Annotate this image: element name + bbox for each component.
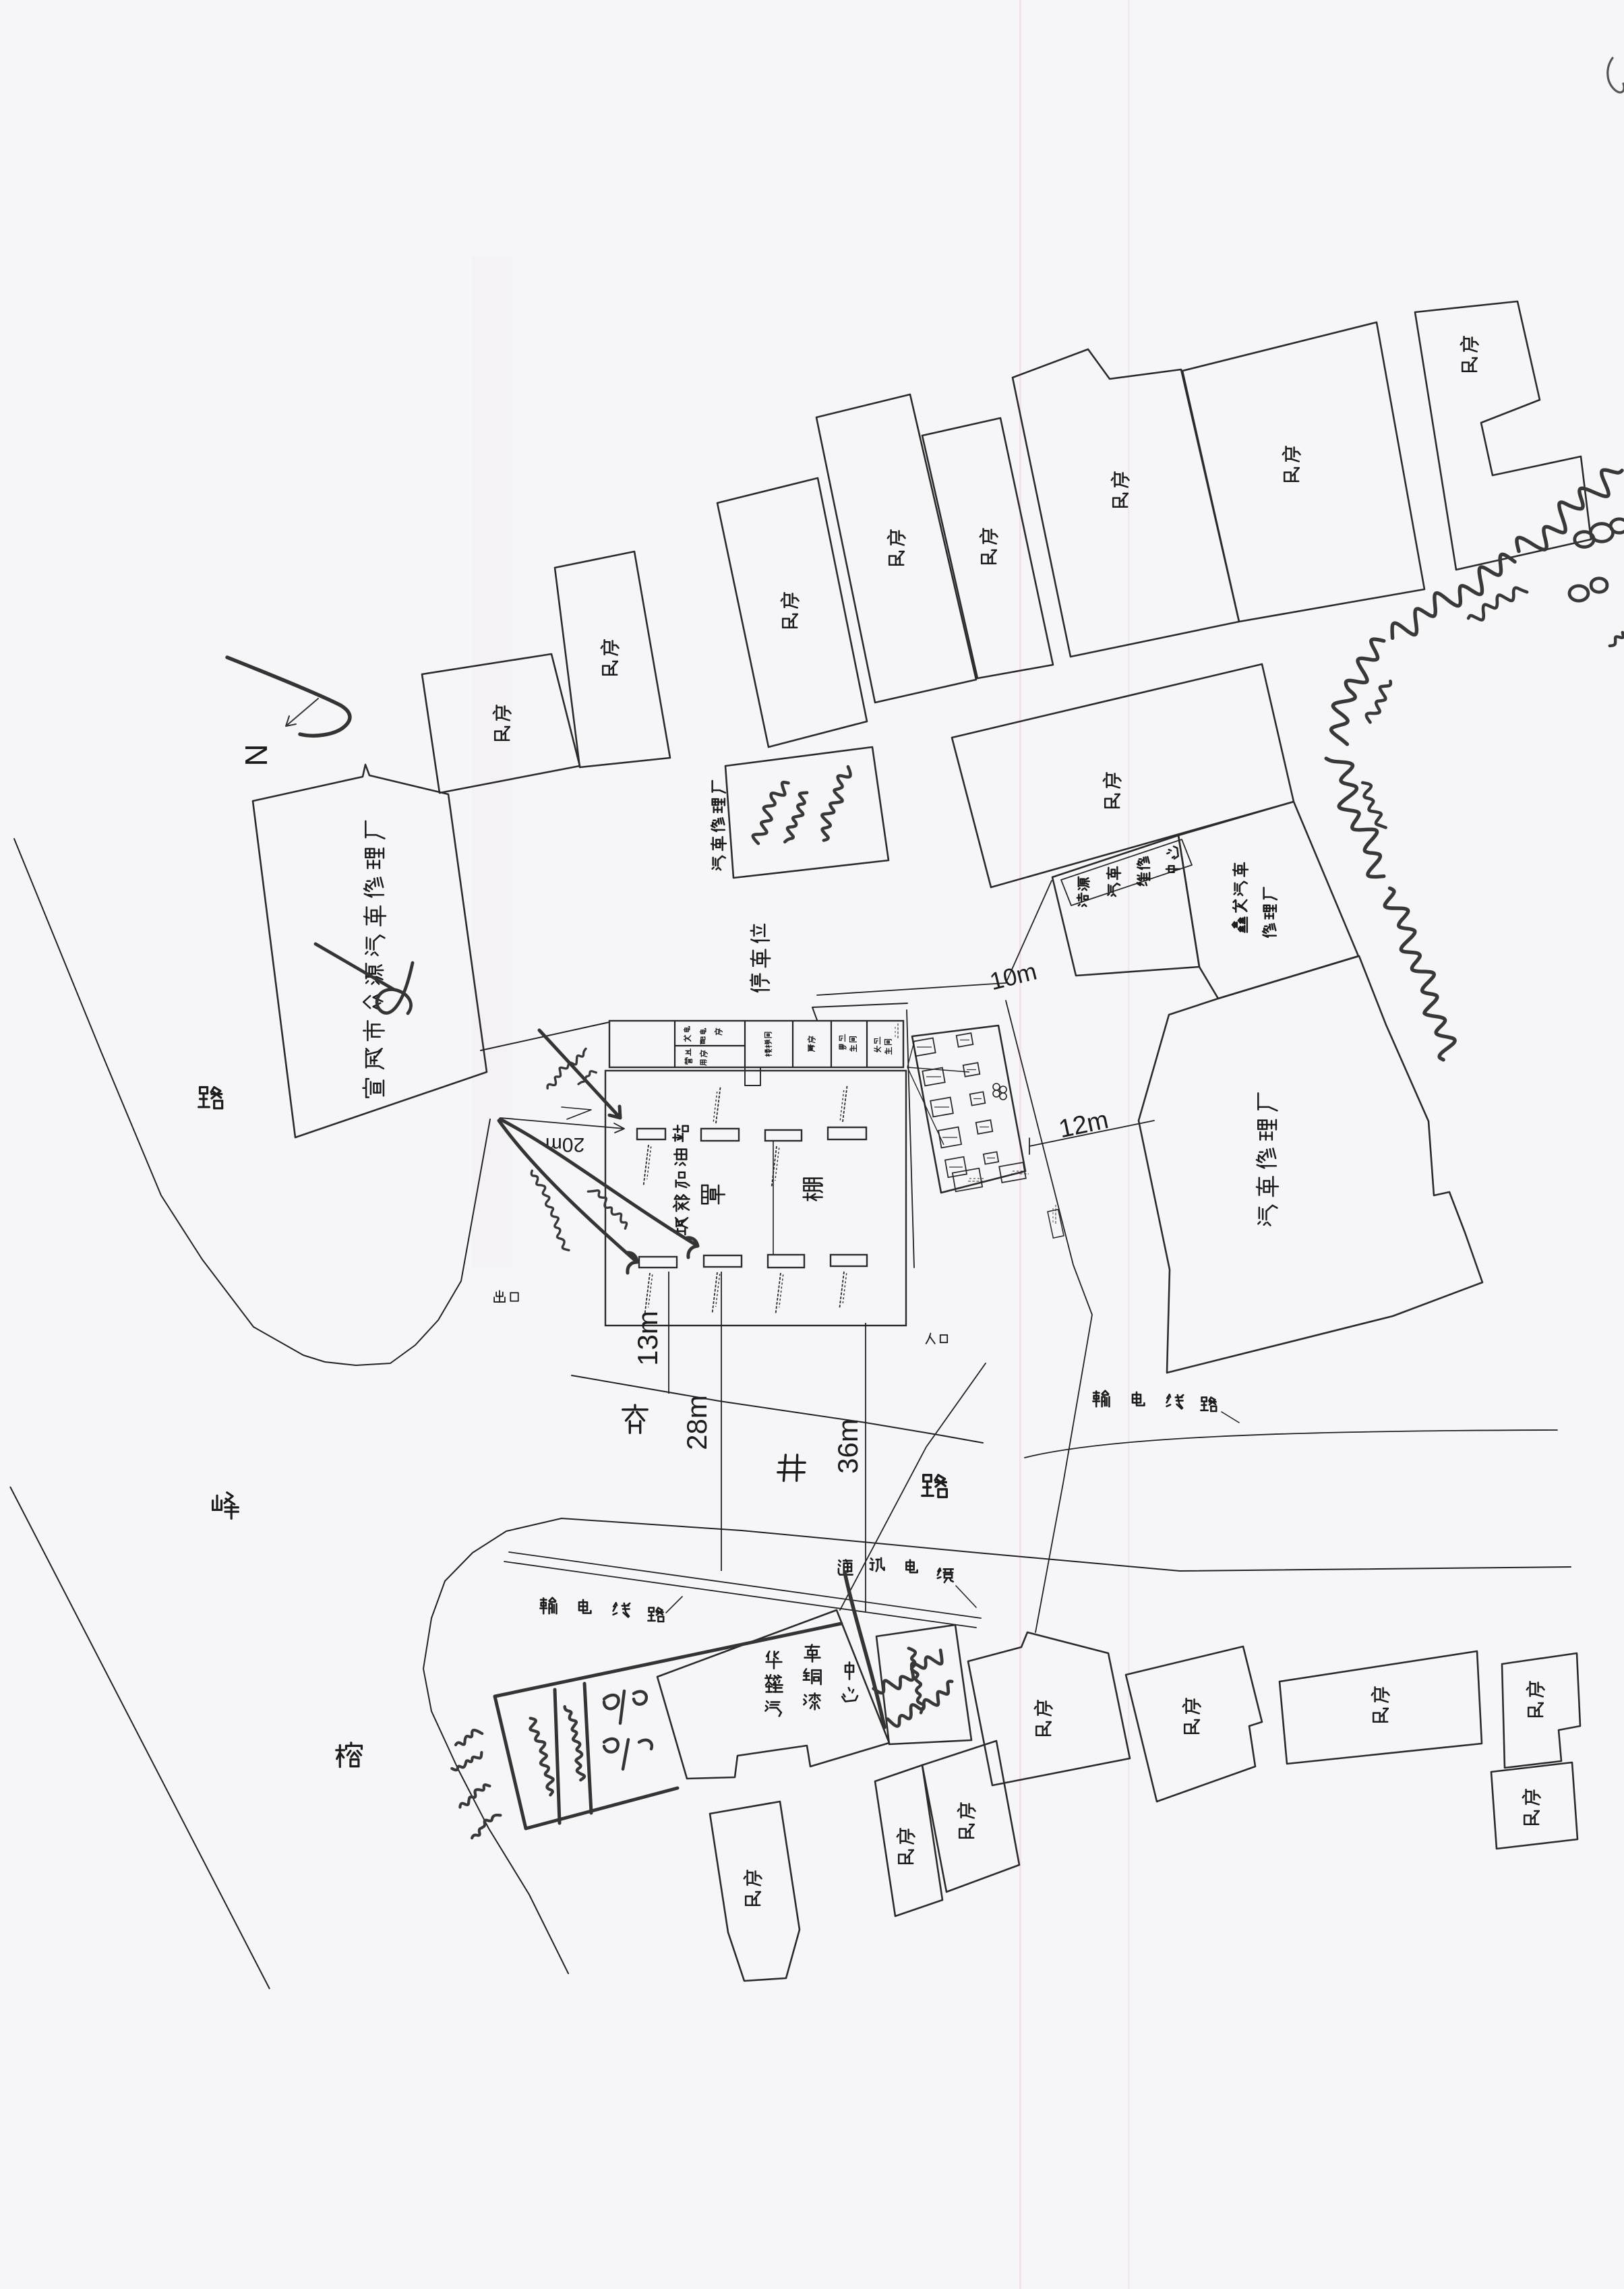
svg-text:36m: 36m: [832, 1419, 864, 1474]
svg-text:N: N: [239, 744, 274, 766]
svg-text:13m: 13m: [632, 1311, 663, 1366]
svg-text:28m: 28m: [681, 1395, 713, 1450]
svg-text:20m: 20m: [545, 1133, 584, 1156]
